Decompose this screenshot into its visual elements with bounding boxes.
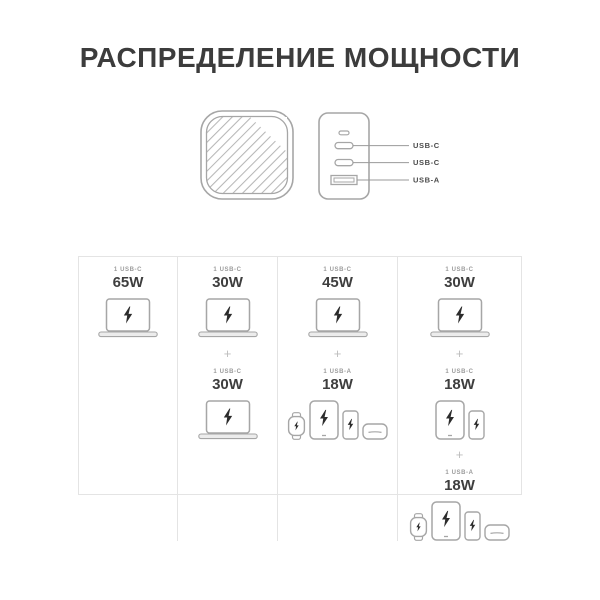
device-row — [308, 298, 368, 339]
power-column-3: 1 USB-C45W+1 USB-A18W — [278, 257, 398, 541]
wattage-value: 30W — [212, 274, 243, 291]
device-row — [435, 400, 485, 440]
tablet-icon — [309, 400, 339, 440]
plus-separator: + — [334, 347, 342, 360]
power-group: 1 USB-A18W — [287, 368, 388, 440]
port-label-usb-c-2: USB-C — [413, 158, 440, 167]
charger-front-icon — [200, 110, 294, 200]
device-row — [430, 298, 490, 339]
wattage-value: 30W — [444, 274, 475, 291]
port-count-label: 1 USB-A — [323, 368, 351, 376]
wattage-value: 18W — [444, 376, 475, 393]
charger-side-icon: USB-C USB-C USB-A — [318, 112, 468, 200]
page-title: РАСПРЕДЕЛЕНИЕ МОЩНОСТИ — [0, 42, 600, 74]
port-count-label: 1 USB-C — [213, 368, 241, 376]
power-group: 1 USB-C30W — [198, 368, 258, 441]
wattage-value: 45W — [322, 274, 353, 291]
infographic-page: РАСПРЕДЕЛЕНИЕ МОЩНОСТИ USB-C — [0, 0, 600, 600]
wattage-value: 18W — [444, 477, 475, 494]
power-column-4: 1 USB-C30W+1 USB-C18W+1 USB-A18W — [398, 257, 521, 541]
port-count-label: 1 USB-C — [114, 266, 142, 274]
laptop-icon — [308, 298, 368, 339]
phone-icon — [468, 410, 485, 440]
wattage-value: 65W — [113, 274, 144, 291]
power-column-1: 1 USB-C65W — [79, 257, 178, 541]
plus-separator: + — [456, 448, 464, 461]
device-row — [409, 501, 510, 541]
laptop-icon — [198, 400, 258, 441]
wattage-value: 30W — [212, 376, 243, 393]
device-row — [287, 400, 388, 440]
plus-separator: + — [224, 347, 232, 360]
tablet-icon — [435, 400, 465, 440]
port-count-label: 1 USB-C — [213, 266, 241, 274]
earbuds-case-icon — [362, 423, 388, 440]
earbuds-case-icon — [484, 524, 510, 541]
power-group: 1 USB-C30W — [198, 266, 258, 339]
port-count-label: 1 USB-C — [445, 368, 473, 376]
power-group: 1 USB-C18W — [435, 368, 485, 440]
power-group: 1 USB-A18W — [409, 469, 510, 541]
power-group: 1 USB-C65W — [98, 266, 158, 339]
port-label-usb-a: USB-A — [413, 176, 440, 185]
power-group: 1 USB-C45W — [308, 266, 368, 339]
power-group: 1 USB-C30W — [430, 266, 490, 339]
wattage-value: 18W — [322, 376, 353, 393]
power-column-2: 1 USB-C30W+1 USB-C30W — [178, 257, 278, 541]
tablet-icon — [431, 501, 461, 541]
laptop-icon — [98, 298, 158, 339]
port-count-label: 1 USB-C — [445, 266, 473, 274]
port-count-label: 1 USB-A — [445, 469, 473, 477]
device-row — [198, 298, 258, 339]
port-label-usb-c-1: USB-C — [413, 141, 440, 150]
phone-icon — [464, 511, 481, 541]
port-count-label: 1 USB-C — [323, 266, 351, 274]
watch-icon — [409, 513, 428, 541]
power-table: 1 USB-C65W1 USB-C30W+1 USB-C30W1 USB-C45… — [78, 256, 522, 495]
watch-icon — [287, 412, 306, 440]
device-row — [198, 400, 258, 441]
plus-separator: + — [456, 347, 464, 360]
laptop-icon — [198, 298, 258, 339]
phone-icon — [342, 410, 359, 440]
device-row — [98, 298, 158, 339]
laptop-icon — [430, 298, 490, 339]
